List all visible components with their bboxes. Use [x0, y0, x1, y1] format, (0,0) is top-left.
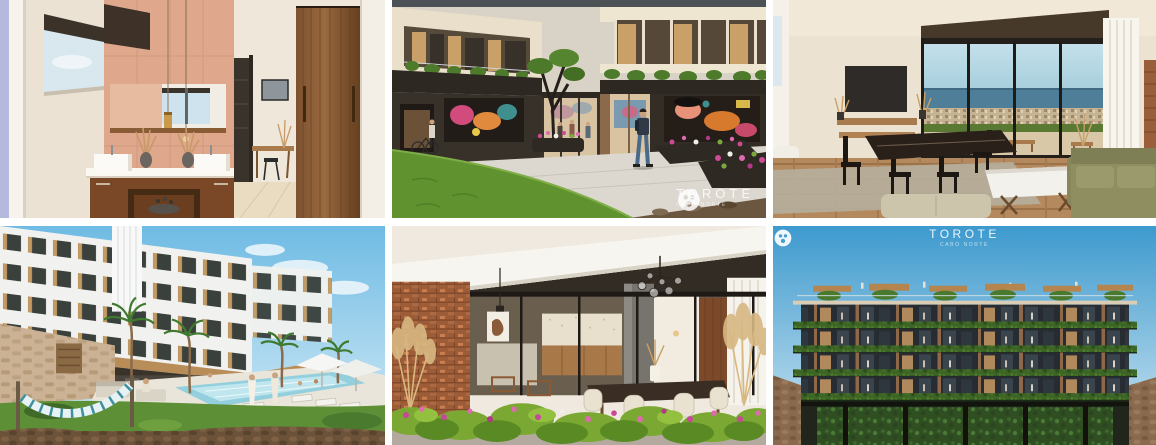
terrace-illustration — [392, 226, 766, 445]
bathroom-illustration — [0, 0, 385, 218]
gallery-item-pool[interactable] — [0, 226, 385, 445]
property-gallery-grid: TOROTE CABO NORTE — [0, 0, 1156, 445]
gallery-item-courtyard[interactable]: TOROTE CABO NORTE — [392, 0, 766, 218]
gallery-item-terrace[interactable] — [392, 226, 766, 445]
gallery-item-bathroom[interactable] — [0, 0, 385, 218]
courtyard-illustration — [392, 0, 766, 218]
gallery-item-living[interactable] — [773, 0, 1156, 218]
gallery-item-facade[interactable]: TOROTE CABO NORTE — [773, 226, 1156, 445]
pool-area-illustration — [0, 226, 385, 445]
living-room-illustration — [773, 0, 1156, 218]
facade-illustration — [773, 226, 1156, 445]
